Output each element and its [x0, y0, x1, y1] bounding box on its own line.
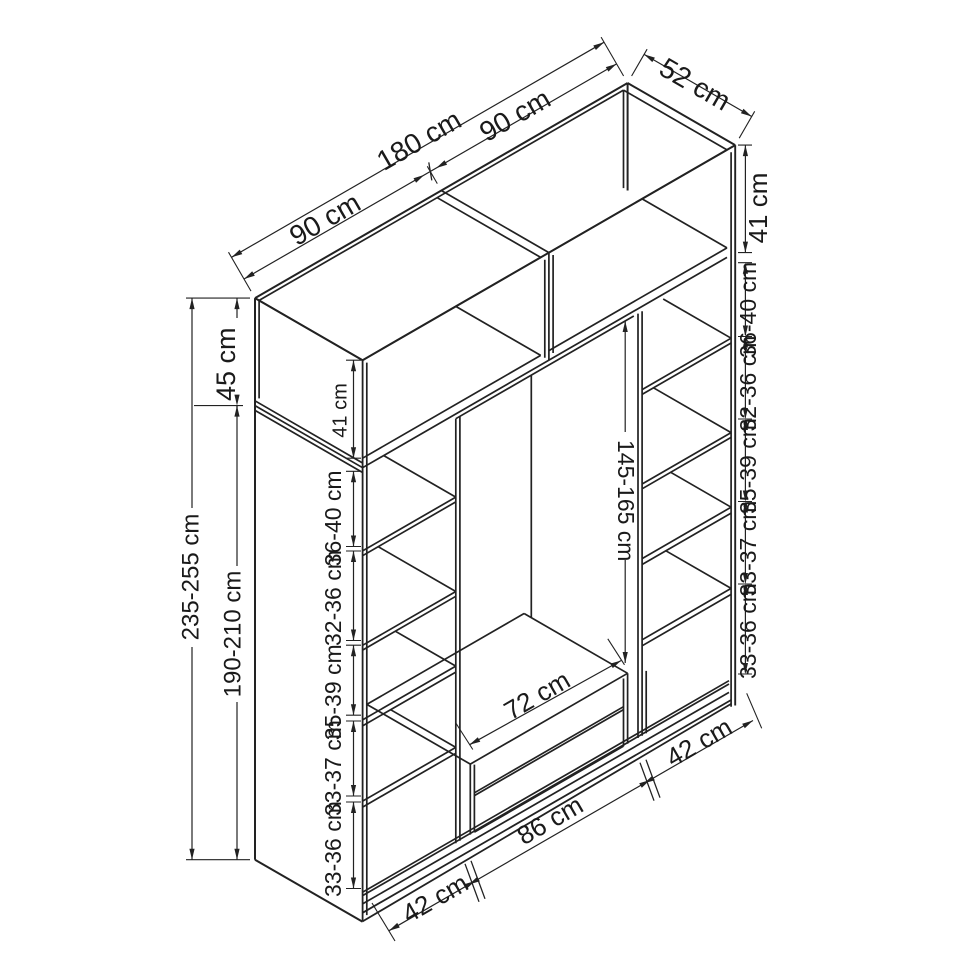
svg-text:35-39 cm: 35-39 cm [735, 418, 761, 514]
svg-text:33-36 cm: 33-36 cm [735, 583, 761, 679]
svg-text:33-37 cm: 33-37 cm [735, 501, 761, 597]
svg-text:32-36 cm: 32-36 cm [735, 336, 761, 432]
svg-text:41 cm: 41 cm [743, 173, 773, 244]
svg-text:190-210 cm: 190-210 cm [219, 571, 246, 698]
svg-text:145-165 cm: 145-165 cm [613, 440, 639, 561]
svg-text:33-36 cm: 33-36 cm [320, 801, 346, 897]
svg-text:41 cm: 41 cm [329, 383, 351, 437]
svg-text:32-36 cm: 32-36 cm [320, 550, 346, 646]
svg-text:235-255 cm: 235-255 cm [177, 514, 204, 641]
svg-text:45 cm: 45 cm [211, 327, 241, 401]
